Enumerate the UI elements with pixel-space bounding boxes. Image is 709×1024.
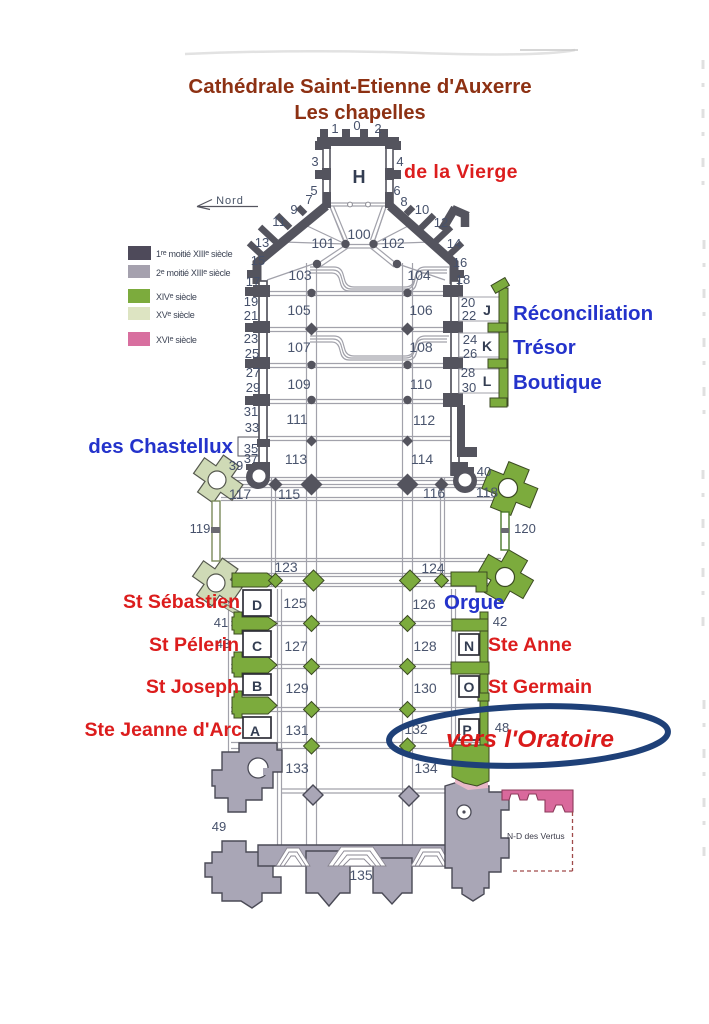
svg-text:des Chastellux: des Chastellux [88,435,233,458]
svg-text:L: L [483,373,492,389]
svg-text:N-D des Vertus: N-D des Vertus [507,831,565,841]
svg-text:126: 126 [412,596,436,612]
svg-text:108: 108 [409,339,433,355]
svg-text:8: 8 [400,194,407,209]
svg-text:135: 135 [349,867,373,883]
svg-text:O: O [464,679,475,695]
svg-text:127: 127 [284,638,308,654]
svg-text:39: 39 [229,458,243,473]
svg-text:17: 17 [246,274,260,289]
svg-text:7: 7 [305,192,312,207]
svg-text:St Pélerin: St Pélerin [149,634,239,656]
svg-text:3: 3 [311,154,318,169]
svg-text:31: 31 [244,404,258,419]
svg-text:119: 119 [190,521,211,536]
svg-text:115: 115 [278,486,301,502]
svg-text:103: 103 [288,267,312,283]
svg-text:St Sébastien: St Sébastien [123,591,240,613]
svg-text:21: 21 [244,308,258,323]
svg-text:16: 16 [453,255,467,270]
svg-text:St Germain: St Germain [488,676,592,698]
svg-text:30: 30 [462,380,476,395]
svg-text:129: 129 [285,680,309,696]
svg-text:de la Vierge: de la Vierge [404,161,518,183]
svg-text:12: 12 [434,215,448,230]
svg-text:Nord: Nord [216,195,244,207]
svg-text:116: 116 [423,485,446,501]
svg-text:112: 112 [413,412,436,428]
svg-text:118: 118 [476,484,499,500]
svg-text:26: 26 [463,346,477,361]
svg-text:37: 37 [244,451,258,466]
svg-text:22: 22 [462,308,476,323]
svg-text:A: A [250,723,260,739]
svg-text:110: 110 [410,376,433,392]
svg-text:0: 0 [353,118,360,133]
svg-text:114: 114 [411,451,434,467]
svg-text:105: 105 [287,302,311,318]
svg-text:19: 19 [244,294,258,309]
svg-text:10: 10 [415,202,429,217]
svg-text:49: 49 [212,819,226,834]
svg-text:2: 2 [374,121,381,136]
svg-text:11: 11 [272,214,286,229]
svg-text:15: 15 [251,253,265,268]
svg-text:Cathédrale Saint-Etienne d'Aux: Cathédrale Saint-Etienne d'Auxerre [188,75,531,98]
svg-text:113: 113 [285,451,308,467]
svg-text:128: 128 [413,638,437,654]
svg-text:131: 131 [285,722,309,738]
svg-text:117: 117 [229,486,252,502]
svg-text:Orgue: Orgue [444,591,504,614]
svg-text:14: 14 [447,236,461,251]
svg-text:vers l'Oratoire: vers l'Oratoire [446,726,614,753]
svg-text:18: 18 [456,272,470,287]
svg-text:1: 1 [331,121,338,136]
svg-text:41: 41 [214,615,228,630]
svg-text:29: 29 [246,380,260,395]
svg-text:D: D [252,597,262,613]
svg-text:40: 40 [477,464,491,479]
svg-text:125: 125 [283,595,307,611]
svg-text:Réconciliation: Réconciliation [513,302,653,325]
svg-text:B: B [252,678,262,694]
svg-text:102: 102 [381,235,405,251]
svg-text:23: 23 [244,331,258,346]
svg-text:XVIe siècle: XVIe siècle [156,335,197,345]
svg-text:27: 27 [246,365,260,380]
svg-text:13: 13 [255,235,269,250]
svg-text:K: K [482,338,492,354]
svg-text:J: J [483,302,491,318]
svg-text:9: 9 [290,202,297,217]
svg-text:St Joseph: St Joseph [146,676,239,698]
svg-text:120: 120 [514,521,536,536]
svg-text:104: 104 [407,267,431,283]
svg-text:107: 107 [287,339,311,355]
svg-text:C: C [252,638,262,654]
svg-text:4: 4 [396,154,403,169]
svg-text:100: 100 [347,226,371,242]
svg-text:1re moitié XIIIe siècle: 1re moitié XIIIe siècle [156,249,233,259]
svg-text:XIVe siècle: XIVe siècle [156,292,197,302]
svg-text:N: N [464,638,474,654]
svg-text:33: 33 [245,420,259,435]
svg-text:109: 109 [287,376,311,392]
svg-text:42: 42 [493,614,507,629]
svg-text:Boutique: Boutique [513,371,602,394]
svg-text:2e moitié XIIIe siècle: 2e moitié XIIIe siècle [156,268,231,278]
svg-text:124: 124 [421,560,445,576]
svg-text:106: 106 [409,302,433,318]
svg-text:123: 123 [274,559,298,575]
svg-text:133: 133 [285,760,309,776]
svg-text:Trésor: Trésor [513,336,576,359]
svg-text:28: 28 [461,365,475,380]
svg-text:XVe siècle: XVe siècle [156,310,195,320]
svg-text:24: 24 [463,332,477,347]
svg-text:Ste Jeanne d'Arc: Ste Jeanne d'Arc [85,719,243,741]
svg-text:111: 111 [286,411,307,427]
svg-text:25: 25 [245,346,259,361]
svg-text:Ste Anne: Ste Anne [488,634,572,656]
svg-text:130: 130 [413,680,437,696]
svg-text:101: 101 [311,235,335,251]
svg-text:H: H [353,167,366,187]
